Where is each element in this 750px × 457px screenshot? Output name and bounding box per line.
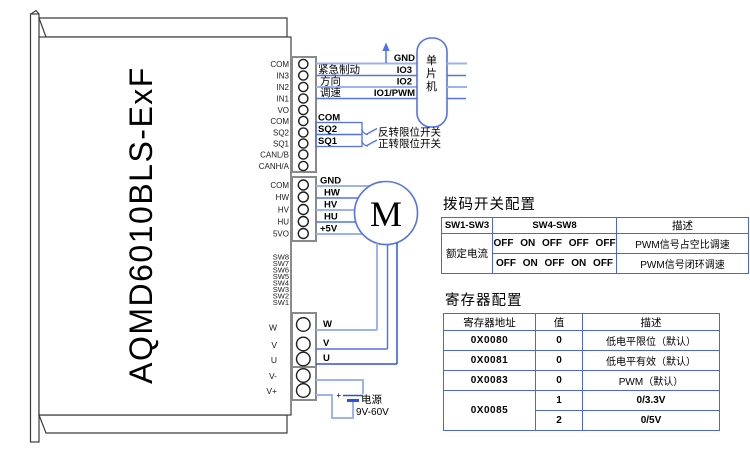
mcu: 单 片 机 [417, 38, 467, 127]
register-value-cell: 0 [536, 331, 583, 351]
wire-label-5v: +5V [320, 224, 338, 235]
register-address-cell: 0X0085 [444, 391, 536, 431]
register-address-cell: 0X0083 [444, 371, 536, 391]
description-cell: PWM信号闭环调速 [617, 254, 749, 274]
pin-label: VO [277, 106, 289, 115]
column-header: SW1-SW3 [442, 218, 493, 234]
battery-icon: + [336, 391, 363, 401]
connector-blocks [292, 57, 316, 400]
battery-plus-mark: + [336, 391, 341, 400]
phase-wires: W V U [316, 319, 397, 364]
register-value-cell: 2 [536, 411, 583, 431]
dip-table-title: 拨码开关配置 [443, 193, 749, 214]
mcu-pin-io3: IO3 [397, 65, 412, 76]
wire-label-gnd: GND [394, 53, 415, 64]
mcu-pin-io1: IO1/PWM [374, 88, 415, 99]
limit-switch-icon [362, 129, 378, 135]
wire-label-v: V [323, 338, 330, 349]
pin-label: SQ1 [273, 139, 290, 148]
mcu-label-char: 单 [426, 54, 437, 67]
controller-body: AQMD6010BLS-ExF [31, 11, 292, 443]
wire-label-com: COM [318, 113, 340, 124]
description-cell: PWM信号占空比调速 [617, 234, 749, 254]
wire-label-u: U [323, 353, 330, 364]
power-supply: + 电源 9V-60V [316, 380, 389, 418]
motor: M [355, 182, 418, 365]
mcu-signal-wires: GND IO3 IO2 IO1/PWM 紧急制动 方向 调速 [316, 43, 417, 100]
pin-label: IN3 [277, 71, 290, 80]
pin-label: V+ [266, 386, 277, 396]
power-range-label: 9V-60V [356, 407, 389, 418]
top-flange [39, 18, 287, 37]
description-cell: 0/5V [583, 411, 720, 431]
signal-label-brake: 紧急制动 [318, 63, 360, 76]
pin-label: HW [276, 193, 290, 202]
pin-label: HU [277, 218, 289, 227]
pin-label: V [271, 340, 277, 350]
pin-label: SQ2 [273, 128, 290, 137]
pin-label: V- [269, 371, 277, 381]
register-section: 寄存器配置 寄存器地址 值 描述 0X0080 0 低电平限位（默认） 0X00… [443, 289, 720, 431]
mcu-pin-io2: IO2 [397, 77, 412, 88]
signal-label-direction: 方向 [320, 75, 341, 88]
limit-switch-icon [362, 140, 378, 146]
sw-setting-cell: OFF ON OFF ON OFF [493, 254, 617, 274]
table-header-row: SW1-SW3 SW4-SW8 描述 [442, 218, 749, 234]
pin-label: COM [270, 117, 289, 126]
pin-label: CANH/A [259, 162, 290, 171]
gnd-arrow-icon [382, 43, 389, 64]
wire-label-sq2: SQ2 [318, 124, 337, 135]
table-row: 0X0083 0 PWM（默认） [444, 371, 720, 391]
register-address-cell: 0X0081 [444, 351, 536, 371]
pin-label: SW1 [273, 298, 289, 307]
dip-switch-table: SW1-SW3 SW4-SW8 描述 额定电流 OFF ON OFF OFF O… [441, 217, 749, 274]
table-row: 额定电流 OFF ON OFF OFF OFF PWM信号占空比调速 [442, 234, 749, 254]
pin-label: IN1 [277, 94, 290, 103]
description-cell: 低电平有效（默认） [583, 351, 720, 371]
pin-label: CANL/B [260, 150, 289, 159]
heatsink-bar [31, 14, 40, 442]
description-cell: PWM（默认） [583, 371, 720, 391]
wire-label-sq1: SQ1 [318, 136, 338, 147]
wire-label-hv: HV [324, 200, 338, 211]
register-address-cell: 0X0080 [444, 331, 536, 351]
mcu-pin-stubs [447, 64, 467, 99]
controller-model-label: AQMD6010BLS-ExF [123, 66, 159, 384]
table-row: 0X0080 0 低电平限位（默认） [444, 331, 720, 351]
description-cell: 低电平限位（默认） [583, 331, 720, 351]
signal-label-speed: 调速 [320, 87, 341, 99]
pin-label: HV [278, 206, 290, 215]
controller-face [39, 37, 291, 415]
sw-setting-cell: OFF ON OFF OFF OFF [493, 234, 617, 254]
mcu-label-char: 片 [426, 67, 437, 80]
table-row: 0X0081 0 低电平有效（默认） [444, 351, 720, 371]
pin-label: W [269, 323, 277, 333]
table-row: 0X0085 1 0/3.3V [444, 391, 720, 411]
column-header: SW4-SW8 [493, 218, 617, 234]
pin-label: IN2 [277, 83, 290, 92]
column-header: 寄存器地址 [444, 314, 536, 331]
motor-letter: M [370, 194, 402, 234]
label-forward-limit: 正转限位开关 [378, 137, 441, 150]
register-table: 寄存器地址 值 描述 0X0080 0 低电平限位（默认） 0X0081 0 低… [443, 313, 720, 431]
dip-switch-section: 拨码开关配置 SW1-SW3 SW4-SW8 描述 额定电流 OFF ON OF… [441, 193, 749, 274]
bottom-flange [39, 415, 287, 433]
label-reverse-limit: 反转限位开关 [378, 126, 441, 139]
pin-label: U [271, 355, 277, 365]
register-value-cell: 0 [536, 351, 583, 371]
table-header-row: 寄存器地址 值 描述 [444, 314, 720, 331]
pin-label: COM [270, 181, 289, 190]
wire-label-w: W [323, 319, 332, 330]
column-header: 值 [536, 314, 583, 331]
pin-label: 5VO [273, 230, 289, 239]
pin-label: COM [270, 60, 289, 69]
column-header: 描述 [583, 314, 720, 331]
column-header: 描述 [617, 218, 749, 234]
register-table-title: 寄存器配置 [445, 289, 720, 310]
mcu-label-char: 机 [426, 79, 437, 93]
wire-label-hw: HW [324, 188, 340, 199]
power-label: 电源 [361, 393, 382, 406]
wire-label-hu: HU [324, 212, 338, 223]
register-value-cell: 1 [536, 391, 583, 411]
wire-label-motor-gnd: GND [320, 176, 341, 187]
row-label-rated-current: 额定电流 [442, 234, 493, 274]
description-cell: 0/3.3V [583, 391, 720, 411]
register-value-cell: 0 [536, 371, 583, 391]
wiring-diagram-page: AQMD6010BLS-ExF COM IN3 IN2 IN1 VO COM S… [0, 0, 750, 457]
